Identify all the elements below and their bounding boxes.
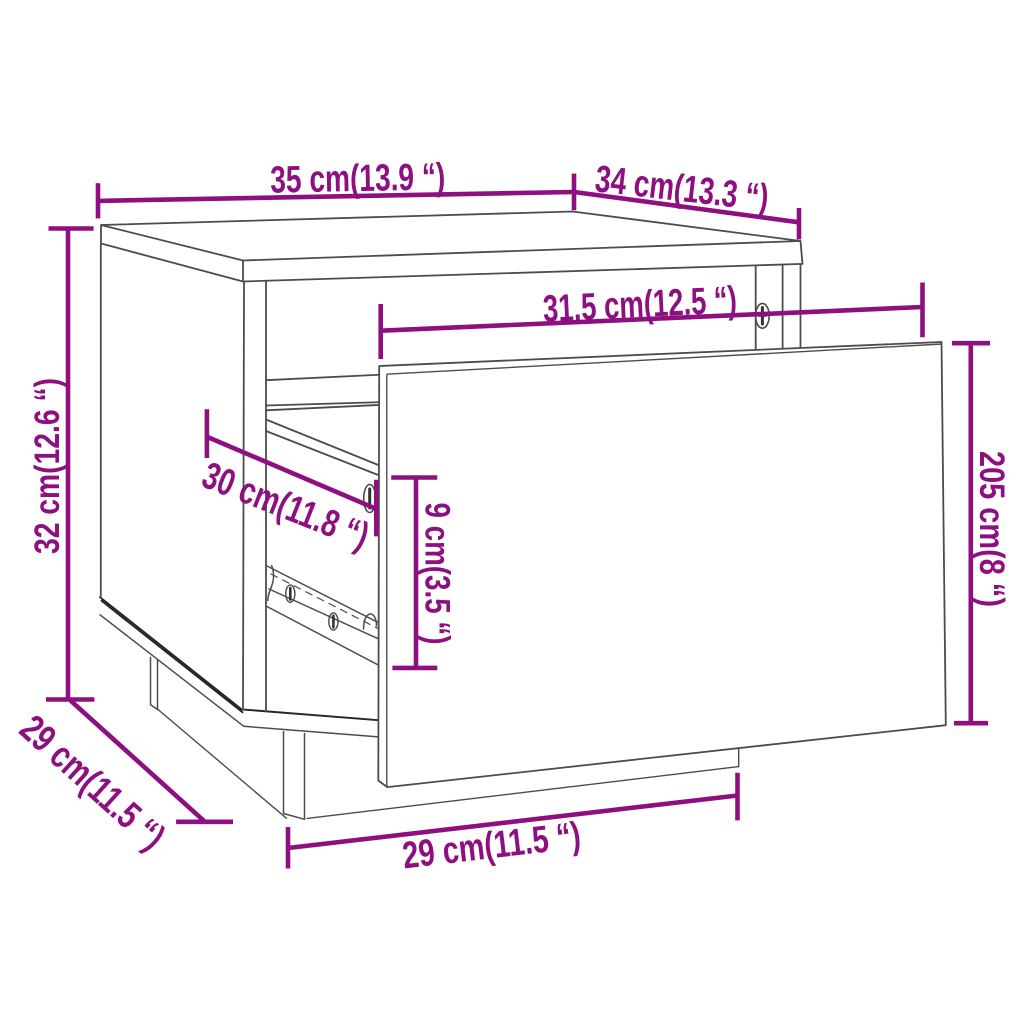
svg-text:205 cm(8 “): 205 cm(8 “) bbox=[972, 451, 1011, 607]
svg-text:35 cm(13.9 “): 35 cm(13.9 “) bbox=[270, 156, 446, 201]
svg-text:9 cm(3.5 “): 9 cm(3.5 “) bbox=[418, 503, 457, 645]
svg-text:32 cm(12.6 “): 32 cm(12.6 “) bbox=[28, 378, 67, 554]
